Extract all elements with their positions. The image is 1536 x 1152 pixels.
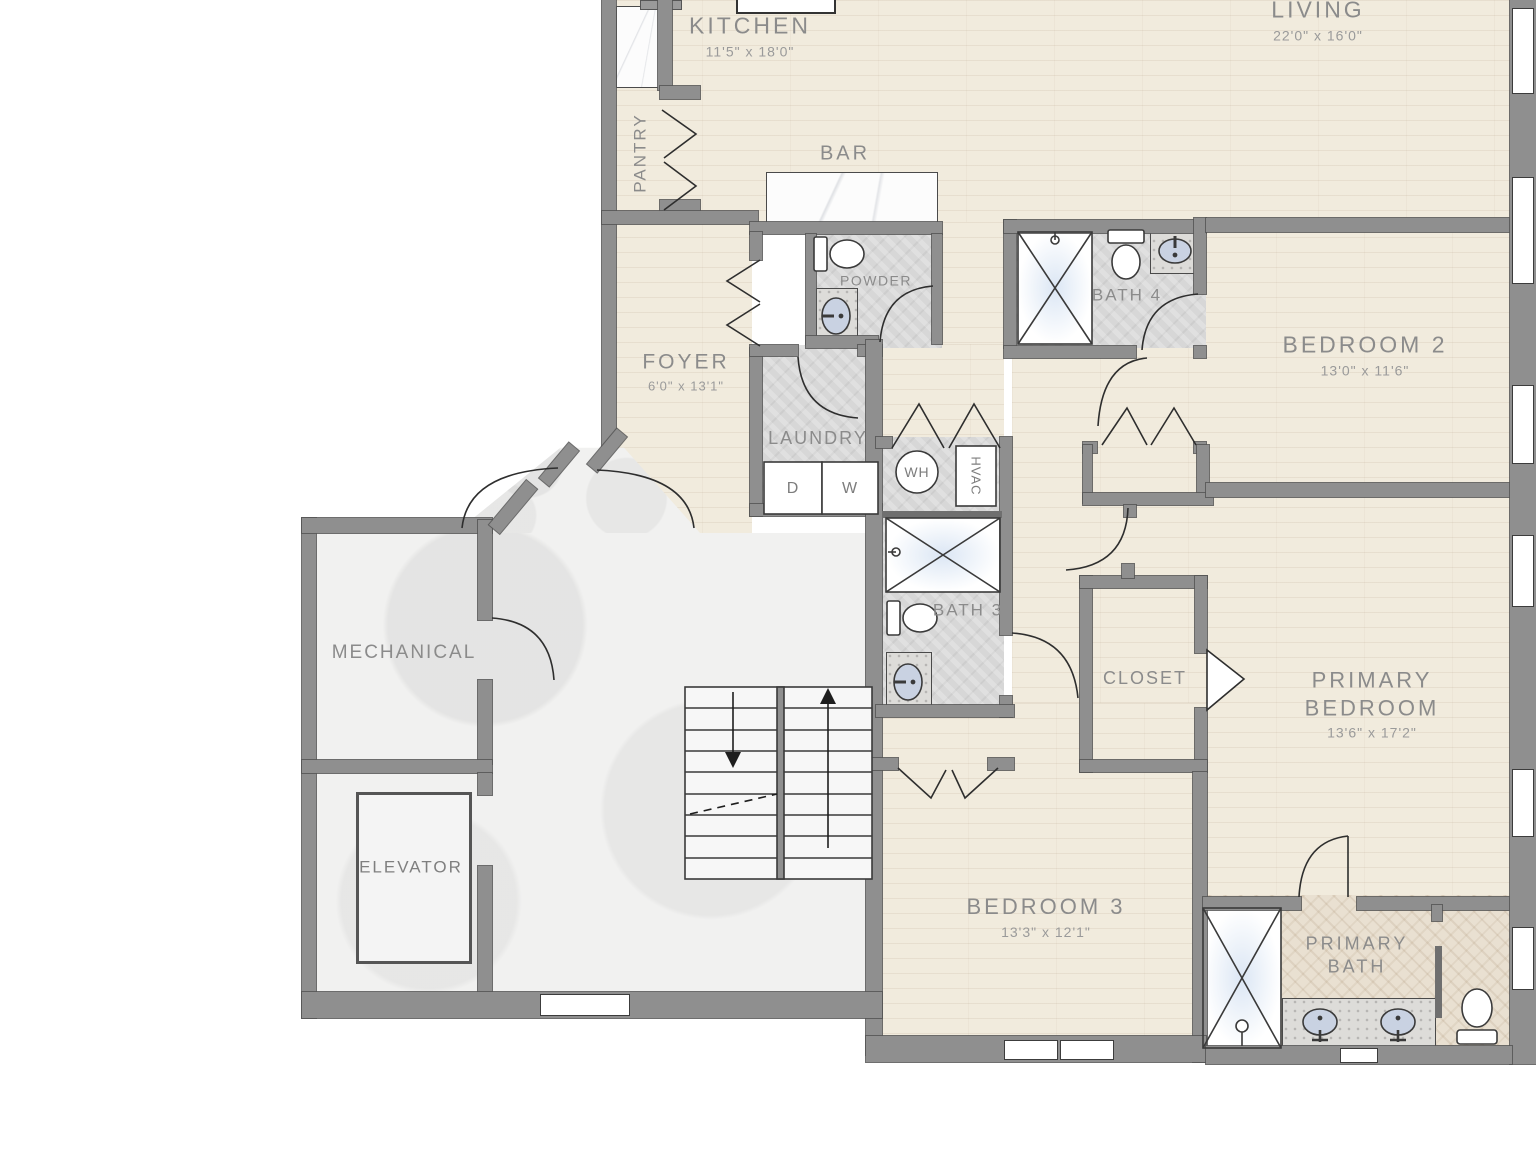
room-label-pantry: PANTRY bbox=[629, 113, 650, 192]
room-dims: 6'0" x 13'1" bbox=[642, 379, 729, 395]
wall bbox=[1004, 220, 1206, 233]
room-label-elevator: ELEVATOR bbox=[359, 856, 463, 877]
window bbox=[1512, 385, 1534, 464]
wall bbox=[478, 680, 492, 764]
wall bbox=[478, 866, 492, 994]
wall bbox=[1194, 346, 1206, 358]
wall bbox=[1206, 218, 1512, 232]
room-dims: 11'5" x 18'0" bbox=[689, 43, 811, 61]
wall bbox=[988, 758, 1014, 770]
wall bbox=[602, 211, 758, 224]
floor-plan: KITCHEN 11'5" x 18'0" LIVING 22'0" x 16'… bbox=[0, 0, 1536, 1152]
window bbox=[1512, 8, 1534, 94]
wall bbox=[750, 345, 798, 356]
floor-wh-lobby bbox=[882, 344, 1004, 439]
wall bbox=[1083, 493, 1213, 505]
wall bbox=[302, 760, 492, 773]
room-dims: 13'3" x 12'1" bbox=[966, 924, 1125, 942]
wall bbox=[658, 0, 672, 90]
wall bbox=[750, 222, 942, 234]
window bbox=[1004, 1040, 1058, 1060]
wall bbox=[1194, 218, 1206, 294]
wall bbox=[1080, 576, 1092, 772]
wall bbox=[1080, 576, 1207, 588]
wall bbox=[1203, 897, 1301, 910]
dryer-label: D bbox=[787, 480, 800, 498]
room-name: FOYER bbox=[642, 349, 729, 375]
room-dims: 13'0" x 11'6" bbox=[1282, 362, 1447, 380]
room-label-primary-bedroom: PRIMARY BEDROOM 13'6" x 17'2" bbox=[1270, 666, 1475, 742]
wall bbox=[1004, 220, 1016, 348]
room-label-powder: POWDER bbox=[840, 272, 912, 290]
wall bbox=[1193, 772, 1207, 1062]
hvac-label: HVAC bbox=[969, 456, 984, 495]
wall bbox=[876, 705, 1014, 717]
elevator-shaft bbox=[356, 792, 472, 964]
wall bbox=[882, 511, 1002, 518]
wall bbox=[1206, 483, 1512, 497]
wall bbox=[932, 234, 942, 344]
room-label-kitchen: KITCHEN 11'5" x 18'0" bbox=[689, 11, 811, 60]
room-name: LIVING bbox=[1271, 0, 1364, 24]
room-dims: 22'0" x 16'0" bbox=[1271, 27, 1364, 45]
wall bbox=[750, 232, 762, 260]
wall bbox=[1195, 576, 1207, 653]
floor-bedroom3 bbox=[880, 703, 1206, 1048]
wall bbox=[478, 520, 492, 620]
wall bbox=[806, 234, 816, 344]
wall bbox=[876, 437, 892, 448]
bar-counter bbox=[766, 172, 938, 224]
wall bbox=[660, 86, 700, 99]
window bbox=[540, 994, 630, 1016]
wall bbox=[866, 758, 898, 770]
room-label-bath3: BATH 3 bbox=[933, 599, 1003, 620]
wall bbox=[1124, 505, 1136, 517]
room-name: PRIMARY BATH bbox=[1292, 933, 1422, 978]
window bbox=[1060, 1040, 1114, 1060]
room-label-bar: BAR bbox=[820, 142, 870, 167]
wall bbox=[1004, 346, 1136, 358]
bath4-shower-pad bbox=[1018, 232, 1092, 344]
wall bbox=[750, 348, 762, 516]
window bbox=[1512, 535, 1534, 607]
washer-label: W bbox=[842, 480, 858, 498]
wall bbox=[1432, 905, 1442, 921]
primary-vanity-counter bbox=[1282, 998, 1436, 1050]
window bbox=[1340, 1048, 1378, 1063]
bath3-sink-counter bbox=[886, 652, 932, 712]
water-heater-label: WH bbox=[904, 464, 929, 480]
room-label-living: LIVING 22'0" x 16'0" bbox=[1271, 0, 1364, 45]
room-label-primary-bath: PRIMARY BATH bbox=[1292, 933, 1422, 978]
room-label-bedroom3: BEDROOM 3 13'3" x 12'1" bbox=[966, 893, 1125, 941]
wall-right-outer bbox=[1510, 0, 1536, 1064]
wall bbox=[478, 773, 492, 795]
wall bbox=[1435, 946, 1442, 1018]
wall bbox=[1122, 564, 1134, 578]
room-label-mechanical: MECHANICAL bbox=[332, 641, 477, 665]
wall bbox=[750, 504, 882, 516]
bath3-shower-pad bbox=[886, 518, 1000, 592]
room-label-bedroom2: BEDROOM 2 13'0" x 11'6" bbox=[1282, 330, 1447, 379]
window bbox=[1512, 769, 1534, 837]
room-name: BEDROOM 3 bbox=[966, 893, 1125, 921]
room-label-laundry: LAUNDRY bbox=[768, 427, 868, 450]
wall bbox=[302, 518, 492, 533]
room-label-foyer: FOYER 6'0" x 13'1" bbox=[642, 349, 729, 395]
room-name: KITCHEN bbox=[689, 11, 811, 40]
room-name: PRIMARY BEDROOM bbox=[1270, 666, 1475, 721]
room-label-bath4: BATH 4 bbox=[1092, 284, 1162, 305]
room-dims: 13'6" x 17'2" bbox=[1270, 724, 1475, 742]
room-name: BEDROOM 2 bbox=[1282, 330, 1447, 359]
kitchen-counter bbox=[616, 6, 664, 88]
window bbox=[1512, 927, 1534, 990]
wall bbox=[1080, 760, 1207, 772]
room-label-closet: CLOSET bbox=[1103, 667, 1187, 690]
primary-shower-pad bbox=[1203, 908, 1281, 1048]
window bbox=[1512, 177, 1534, 284]
